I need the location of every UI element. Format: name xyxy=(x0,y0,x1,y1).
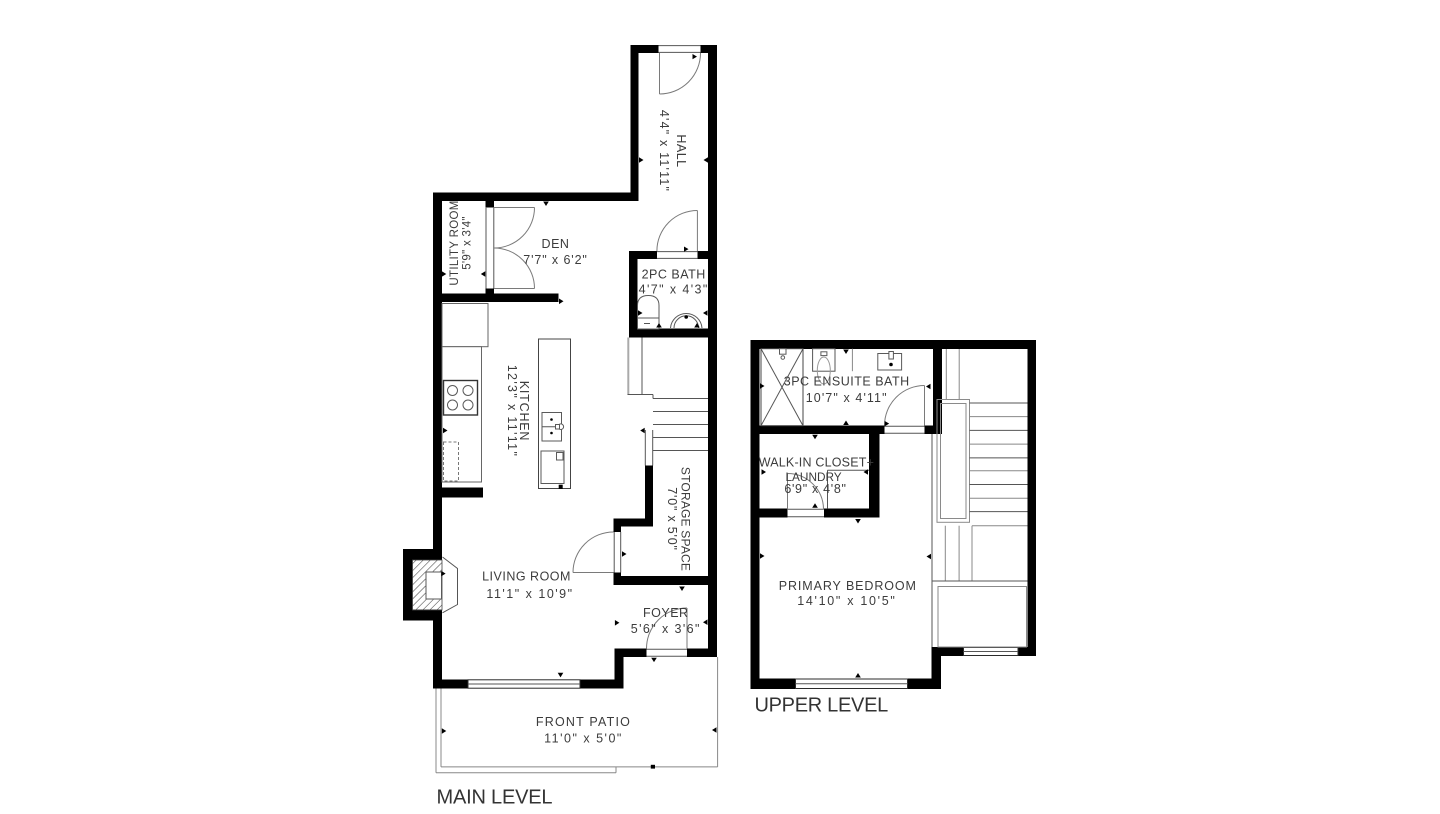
svg-text:4'4" x 11'11": 4'4" x 11'11" xyxy=(657,110,671,192)
svg-text:UTILITY ROOM: UTILITY ROOM xyxy=(449,200,461,285)
svg-text:5'9" x 3'4": 5'9" x 3'4" xyxy=(461,216,473,270)
svg-text:FRONT PATIO: FRONT PATIO xyxy=(536,715,631,729)
svg-text:2PC BATH: 2PC BATH xyxy=(642,267,706,281)
svg-text:11'1" x 10'9": 11'1" x 10'9" xyxy=(486,587,573,601)
svg-text:10'7" x 4'11": 10'7" x 4'11" xyxy=(806,391,888,405)
svg-text:5'6" x 3'6": 5'6" x 3'6" xyxy=(631,622,701,636)
svg-text:FOYER: FOYER xyxy=(643,606,689,620)
svg-text:14'10" x 10'5": 14'10" x 10'5" xyxy=(797,594,896,608)
svg-text:STORAGE SPACE: STORAGE SPACE xyxy=(679,467,693,571)
svg-text:PRIMARY BEDROOM: PRIMARY BEDROOM xyxy=(779,579,917,593)
svg-text:WALK-IN CLOSET+: WALK-IN CLOSET+ xyxy=(759,456,874,470)
svg-text:6'9" x 4'8": 6'9" x 4'8" xyxy=(784,482,846,496)
svg-text:12'3" x 11'11": 12'3" x 11'11" xyxy=(505,365,519,458)
svg-text:3PC ENSUITE BATH: 3PC ENSUITE BATH xyxy=(784,375,910,389)
svg-text:LIVING ROOM: LIVING ROOM xyxy=(482,569,571,583)
svg-text:7'0" x 5'0": 7'0" x 5'0" xyxy=(665,487,679,550)
svg-text:4'7" x 4'3": 4'7" x 4'3" xyxy=(639,282,709,296)
svg-text:MAIN LEVEL: MAIN LEVEL xyxy=(437,787,553,809)
svg-text:11'0" x 5'0": 11'0" x 5'0" xyxy=(544,731,623,745)
svg-text:7'7" x 6'2": 7'7" x 6'2" xyxy=(523,253,588,267)
svg-text:HALL: HALL xyxy=(674,134,688,167)
svg-text:DEN: DEN xyxy=(542,237,570,251)
svg-text:UPPER LEVEL: UPPER LEVEL xyxy=(755,695,889,717)
